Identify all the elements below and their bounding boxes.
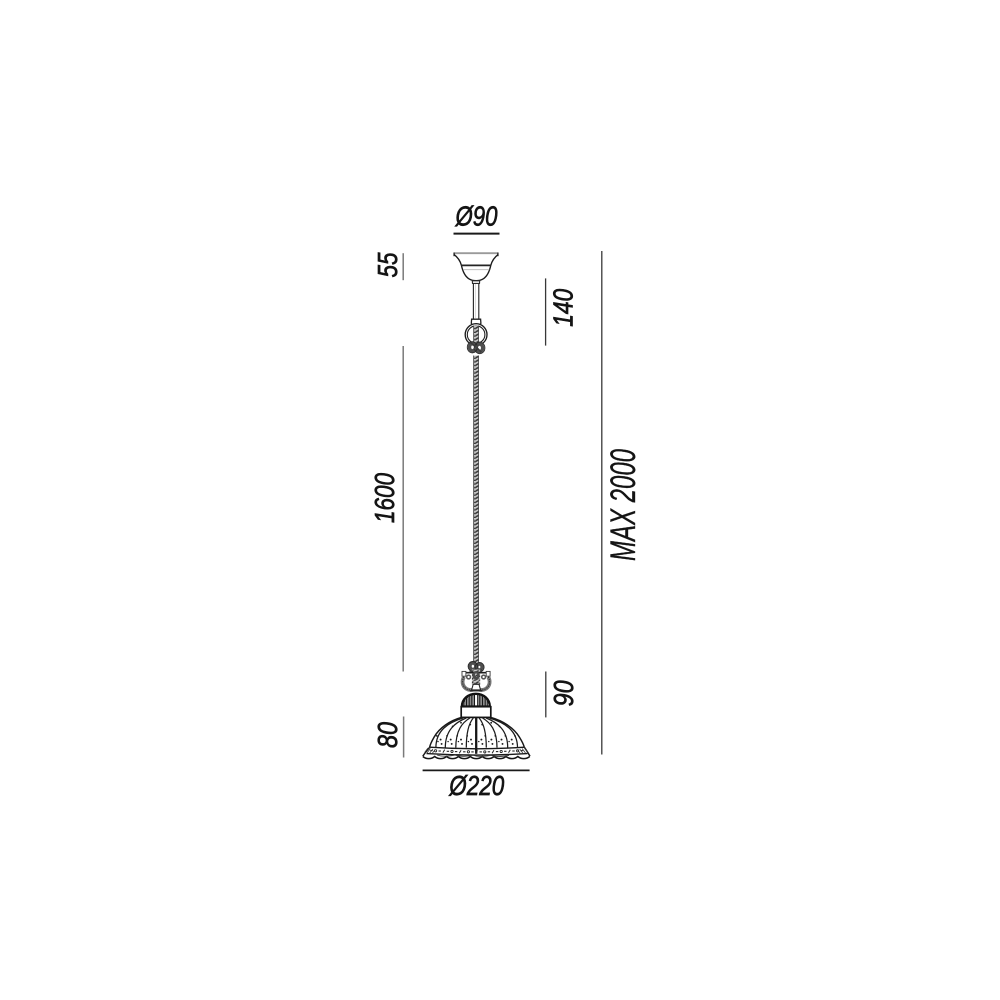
svg-text:MAX 2000: MAX 2000 xyxy=(604,449,643,561)
svg-text:Ø220: Ø220 xyxy=(448,770,504,801)
svg-text:55: 55 xyxy=(372,252,403,277)
svg-text:140: 140 xyxy=(548,288,579,326)
svg-text:80: 80 xyxy=(372,722,403,748)
svg-text:90: 90 xyxy=(548,680,579,706)
svg-text:1600: 1600 xyxy=(369,473,400,523)
svg-text:Ø90: Ø90 xyxy=(455,201,498,232)
